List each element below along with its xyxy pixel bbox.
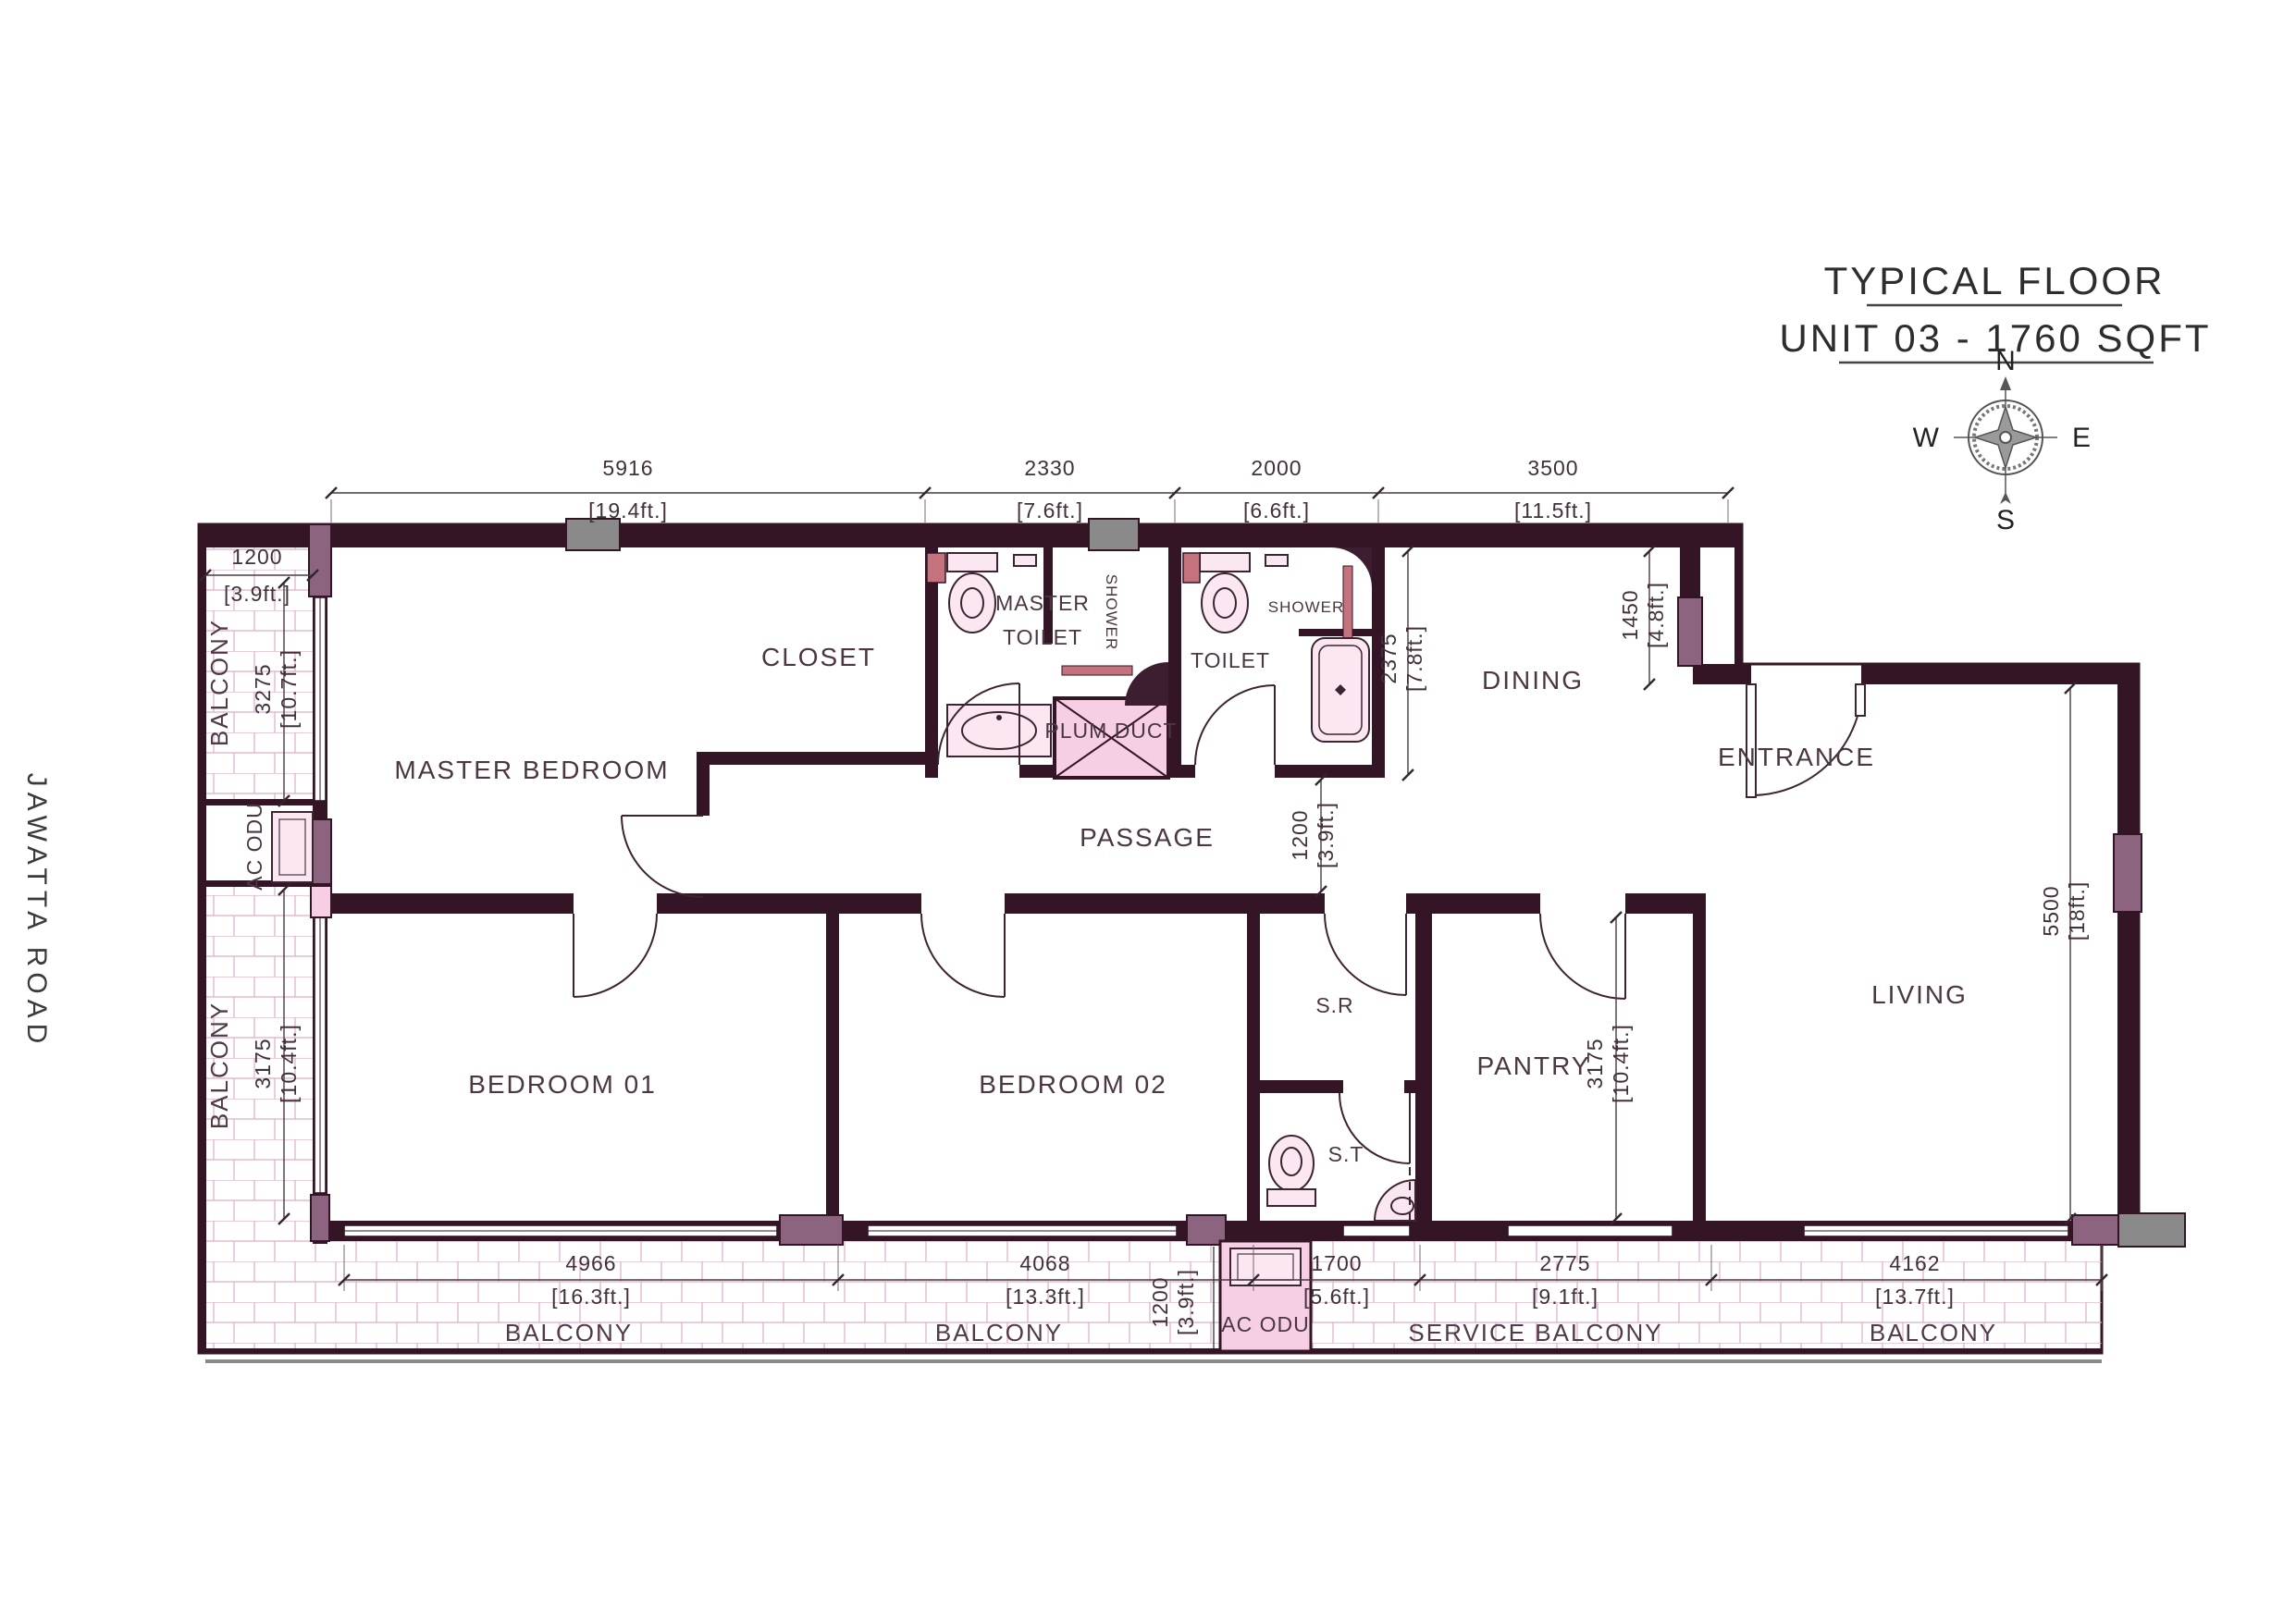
dim-top-1-mm: 5916 xyxy=(602,456,653,480)
wall-bottom-outer xyxy=(199,1348,2102,1354)
label-pantry: PANTRY xyxy=(1477,1051,1591,1080)
dim-bot-3-mm: 1700 xyxy=(1311,1251,1362,1275)
dim-passage-ft: [3.9ft.] xyxy=(1314,802,1338,868)
label-master-toilet-2: TOILET xyxy=(1003,625,1082,649)
wall-toilets-bottom-b xyxy=(1019,765,1055,778)
label-service-balcony: SERVICE BALCONY xyxy=(1408,1319,1662,1346)
column-top-2 xyxy=(1089,519,1139,550)
dim-dining-depth-ft: [7.8ft.] xyxy=(1402,625,1426,692)
toilet-icon-st xyxy=(1267,1136,1315,1206)
label-plum-duct: PLUM DUCT xyxy=(1044,719,1177,743)
wall-top xyxy=(199,524,1742,547)
toilet-icon-common xyxy=(1183,553,1288,633)
label-bedroom2: BEDROOM 02 xyxy=(979,1070,1167,1099)
label-sr: S.R xyxy=(1315,993,1353,1017)
dim-balcony-depth-mm: 1200 xyxy=(1148,1276,1172,1327)
dim-bot-4-mm: 2775 xyxy=(1539,1251,1590,1275)
door-bedroom1 xyxy=(574,914,657,997)
wall-right-outer xyxy=(2117,664,2139,1241)
dim-bot-1-mm: 4966 xyxy=(565,1251,616,1275)
wall-midrow-a xyxy=(327,893,574,914)
wall-toilets-bottom-c xyxy=(1168,765,1195,778)
dim-passage-mm: 1200 xyxy=(1288,809,1312,860)
label-balcony-1: BALCONY xyxy=(505,1319,633,1346)
door-bedroom2 xyxy=(921,914,1005,997)
label-closet: CLOSET xyxy=(761,643,876,671)
dim-left-lower-ft: [10.4ft.] xyxy=(277,1024,301,1103)
label-bedroom1: BEDROOM 01 xyxy=(468,1070,657,1099)
dim-left-width-mm: 1200 xyxy=(231,545,282,569)
dimensions-top: 5916 [19.4ft.] 2330 [7.6ft.] 2000 [6.6ft… xyxy=(326,456,1734,523)
dim-top-3-ft: [6.6ft.] xyxy=(1243,498,1310,523)
label-shower-toilet: SHOWER xyxy=(1268,598,1345,616)
compass-s: S xyxy=(1996,505,2015,535)
wall-vestibule-stub xyxy=(697,765,710,816)
dim-top-4-ft: [11.5ft.] xyxy=(1514,498,1592,523)
door-entrance xyxy=(1751,684,1862,795)
window-pantry xyxy=(1508,1225,1673,1236)
dim-bot-2-mm: 4068 xyxy=(1019,1251,1070,1275)
label-balcony-left-upper: BALCONY xyxy=(205,619,233,746)
label-entrance: ENTRANCE xyxy=(1718,743,1875,771)
dim-dining-right-ft: [4.8ft.] xyxy=(1644,582,1668,648)
dim-bot-5-ft: [13.7ft.] xyxy=(1875,1285,1955,1309)
wall-entry-top-a xyxy=(1693,664,1751,684)
floor-plan-drawing: 5916 [19.4ft.] 2330 [7.6ft.] 2000 [6.6ft… xyxy=(0,0,2296,1623)
door-pantry xyxy=(1540,914,1625,999)
label-ac-odu-left: AC ODU xyxy=(242,802,266,890)
label-master-toilet-1: MASTER xyxy=(995,591,1090,615)
wall-nook-edge xyxy=(1734,547,1742,664)
compass-e: E xyxy=(2072,423,2091,453)
label-shower-master: SHOWER xyxy=(1103,574,1120,651)
dim-bot-5-mm: 4162 xyxy=(1889,1251,1940,1275)
wall-closet-south xyxy=(697,752,938,765)
dim-bot-2-ft: [13.3ft.] xyxy=(1006,1285,1085,1309)
sheet-title: TYPICAL FLOOR xyxy=(1824,259,2166,302)
wall-sr-st-a xyxy=(1260,1080,1343,1093)
column-left-ac xyxy=(311,819,331,884)
column-left-top xyxy=(309,524,331,596)
dim-top-2-mm: 2330 xyxy=(1024,456,1075,480)
wall-midrow-e xyxy=(1625,893,1706,914)
dim-dining-depth-mm: 2375 xyxy=(1376,633,1401,683)
floor-plan-sheet: 5916 [19.4ft.] 2330 [7.6ft.] 2000 [6.6ft… xyxy=(0,0,2296,1623)
dim-top-3-mm: 2000 xyxy=(1251,456,1302,480)
wall-midrow-d xyxy=(1406,893,1540,914)
dim-pantry-depth-ft: [10.4ft.] xyxy=(1609,1024,1633,1103)
label-passage: PASSAGE xyxy=(1080,823,1215,852)
road-label: JAWATTA ROAD xyxy=(21,773,52,1050)
column-left-ac2 xyxy=(311,886,331,917)
label-balcony-3: BALCONY xyxy=(1870,1319,1997,1346)
column-corner-mauve xyxy=(2072,1215,2118,1245)
window-st xyxy=(1343,1225,1410,1236)
dim-bot-4-ft: [9.1ft.] xyxy=(1532,1285,1599,1309)
bathtub-icon xyxy=(1312,638,1369,742)
dim-bot-1-ft: [16.3ft.] xyxy=(551,1285,631,1309)
column-top-1 xyxy=(566,519,620,550)
label-master-bedroom: MASTER BEDROOM xyxy=(394,756,669,784)
wall-pantry-living xyxy=(1693,914,1706,1221)
door-sr xyxy=(1325,914,1406,995)
wall-entry-top-b xyxy=(1861,664,2139,684)
column-living-right xyxy=(2114,834,2142,912)
column-dining-right xyxy=(1678,597,1702,666)
label-balcony-left-lower: BALCONY xyxy=(205,1002,233,1129)
windows xyxy=(315,597,2068,1236)
dim-top-1-ft: [19.4ft.] xyxy=(588,498,668,523)
label-toilet: TOILET xyxy=(1191,648,1270,672)
dim-left-upper-mm: 3275 xyxy=(251,663,275,714)
label-living: LIVING xyxy=(1871,980,1968,1009)
sink-icon-master xyxy=(947,705,1051,756)
dim-living-depth-mm: 5500 xyxy=(2039,885,2063,936)
column-left-bottom xyxy=(311,1195,329,1241)
door-entrance-leaf2 xyxy=(1856,684,1865,716)
wall-bed-divider xyxy=(826,914,839,1221)
label-dining: DINING xyxy=(1482,666,1584,695)
wall-toilets-bottom-a xyxy=(925,765,938,778)
shower-screen-master xyxy=(1062,666,1132,675)
compass-icon: N E S W xyxy=(1913,346,2091,535)
label-ac-odu-bottom: AC ODU xyxy=(1221,1312,1309,1336)
wall-toilet-divider xyxy=(1168,547,1181,778)
door-toilet xyxy=(1195,685,1275,765)
dim-balcony-depth-ft: [3.9ft.] xyxy=(1174,1269,1198,1335)
dim-top-4-mm: 3500 xyxy=(1527,456,1578,480)
dim-living-depth-ft: [18ft.] xyxy=(2065,881,2089,941)
door-master-bedroom xyxy=(622,816,703,897)
label-balcony-2: BALCONY xyxy=(935,1319,1063,1346)
column-bottom-1 xyxy=(780,1215,843,1245)
shower-screen-toilet xyxy=(1343,566,1352,644)
column-corner-gray xyxy=(2118,1213,2185,1247)
wall-midrow-c xyxy=(1005,893,1325,914)
wall-sr-right xyxy=(1415,914,1432,1221)
compass-n: N xyxy=(1995,346,2016,376)
wall-sr-st-b xyxy=(1404,1080,1415,1093)
wall-toilets-bottom-d xyxy=(1275,765,1385,778)
dim-dining-right-mm: 1450 xyxy=(1618,589,1642,640)
wall-bath-partition xyxy=(1299,629,1385,636)
dim-left-lower-mm: 3175 xyxy=(251,1038,275,1088)
ac-unit-left-icon xyxy=(272,812,313,882)
wall-bed2-right xyxy=(1247,914,1260,1221)
dim-top-2-ft: [7.6ft.] xyxy=(1017,498,1083,523)
compass-w: W xyxy=(1913,423,1940,453)
dim-left-upper-ft: [10.7ft.] xyxy=(277,649,301,729)
dim-bot-3-ft: [5.6ft.] xyxy=(1303,1285,1370,1309)
label-st: S.T xyxy=(1328,1142,1364,1166)
